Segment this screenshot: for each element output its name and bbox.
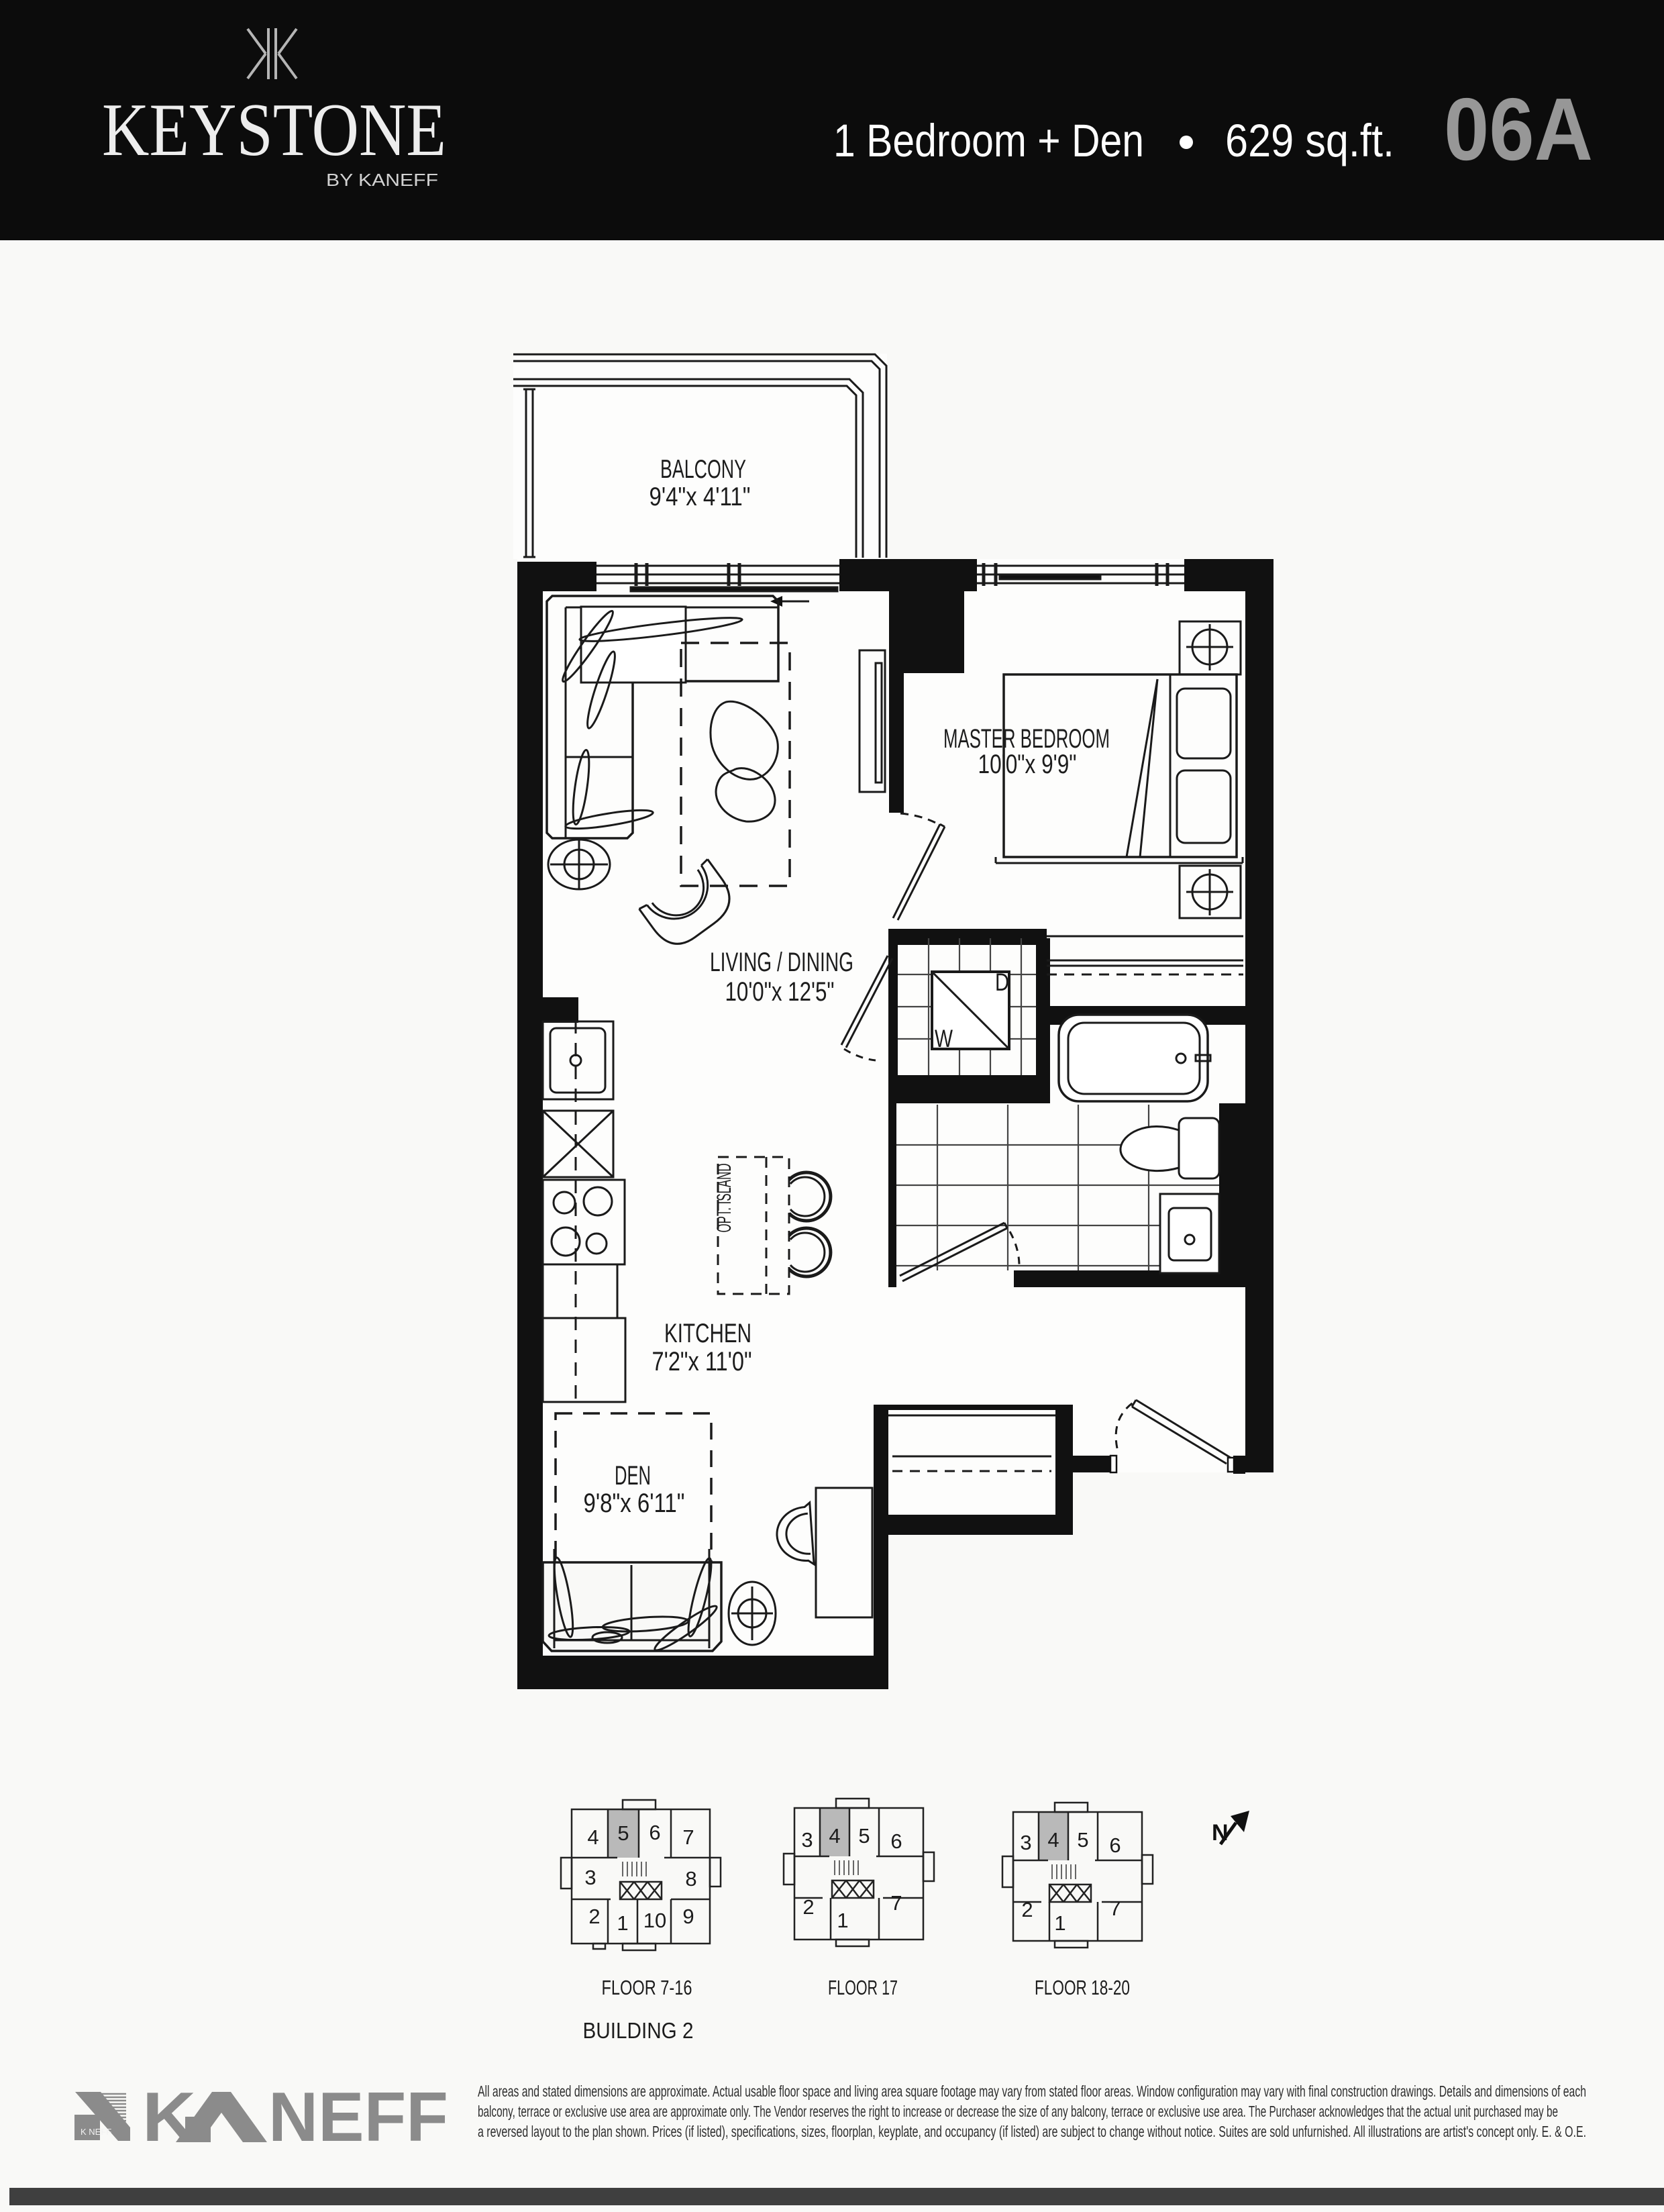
svg-text:1: 1 <box>617 1911 628 1935</box>
svg-text:1: 1 <box>837 1909 848 1932</box>
svg-text:balcony, terrace or exclusive: balcony, terrace or exclusive use area a… <box>478 2103 1558 2120</box>
svg-text:7: 7 <box>890 1891 902 1915</box>
svg-text:NEFF: NEFF <box>268 2078 448 2156</box>
svg-text:9'4"x 4'11": 9'4"x 4'11" <box>649 483 751 511</box>
svg-text:7: 7 <box>682 1825 694 1849</box>
svg-text:LIVING / DINING: LIVING / DINING <box>710 948 853 977</box>
svg-text:4: 4 <box>587 1825 599 1849</box>
svg-text:BUILDING 2: BUILDING 2 <box>583 2018 694 2043</box>
svg-text:5: 5 <box>858 1824 870 1848</box>
svg-text:1 Bedroom + Den: 1 Bedroom + Den <box>833 115 1144 166</box>
svg-text:3: 3 <box>801 1828 813 1852</box>
svg-text:6: 6 <box>890 1829 902 1853</box>
svg-text:a reversed layout to the plan: a reversed layout to the plan shown. Pri… <box>478 2123 1586 2140</box>
svg-text:6: 6 <box>1109 1833 1121 1857</box>
svg-text:FLOOR 18-20: FLOOR 18-20 <box>1035 1976 1130 1999</box>
svg-text:5: 5 <box>1077 1828 1088 1852</box>
svg-text:8: 8 <box>685 1867 696 1891</box>
svg-text:BALCONY: BALCONY <box>660 455 746 484</box>
svg-text:629 sq.ft.: 629 sq.ft. <box>1225 115 1394 166</box>
svg-text:9: 9 <box>682 1905 694 1928</box>
svg-text:10'0"x 9'9": 10'0"x 9'9" <box>978 750 1077 779</box>
svg-text:3: 3 <box>1020 1831 1031 1854</box>
svg-text:4: 4 <box>829 1824 840 1848</box>
svg-text:10: 10 <box>643 1909 666 1932</box>
svg-text:FLOOR 17: FLOOR 17 <box>828 1976 898 1999</box>
svg-text:W: W <box>935 1025 953 1052</box>
svg-text:1: 1 <box>1054 1911 1065 1935</box>
svg-text:BY KANEFF: BY KANEFF <box>326 170 438 190</box>
svg-text:10'0"x 12'5": 10'0"x 12'5" <box>725 977 835 1007</box>
svg-text:All areas and stated dimension: All areas and stated dimensions are appr… <box>478 2082 1586 2100</box>
svg-text:K NEFF: K NEFF <box>81 2127 111 2137</box>
svg-text:2: 2 <box>588 1905 600 1928</box>
svg-text:KITCHEN: KITCHEN <box>664 1319 751 1348</box>
svg-text:7'2"x 11'0": 7'2"x 11'0" <box>652 1347 752 1376</box>
svg-text:7: 7 <box>1109 1897 1121 1920</box>
svg-text:06A: 06A <box>1444 80 1593 179</box>
svg-text:KEYSTONE: KEYSTONE <box>102 89 446 172</box>
svg-text:D: D <box>995 968 1009 996</box>
svg-text:3: 3 <box>584 1866 596 1889</box>
svg-text:OPT. ISLAND: OPT. ISLAND <box>713 1164 735 1233</box>
svg-text:DEN: DEN <box>615 1461 651 1491</box>
svg-text:FLOOR 7-16: FLOOR 7-16 <box>602 1976 692 1999</box>
svg-text:2: 2 <box>802 1895 814 1919</box>
svg-text:6: 6 <box>649 1821 660 1844</box>
svg-text:N: N <box>1212 1820 1229 1846</box>
svg-text:9'8"x 6'11": 9'8"x 6'11" <box>584 1489 685 1518</box>
svg-text:4: 4 <box>1047 1828 1059 1852</box>
svg-text:5: 5 <box>617 1821 629 1845</box>
svg-text:2: 2 <box>1021 1898 1033 1921</box>
